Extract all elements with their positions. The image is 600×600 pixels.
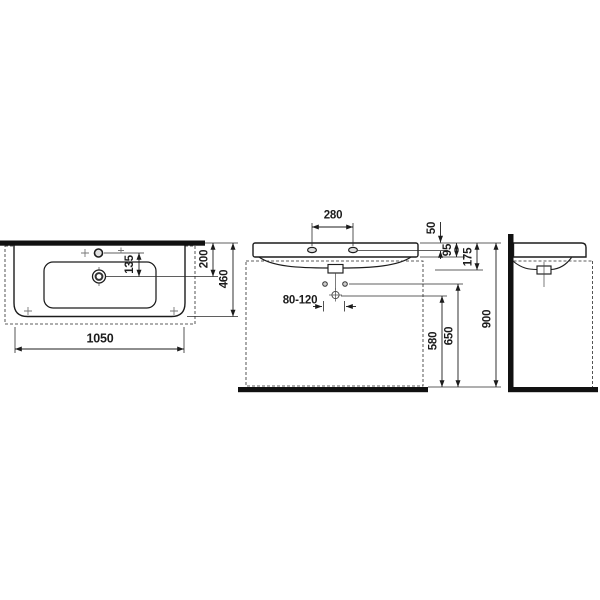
dim-label-95: 95 (442, 243, 454, 256)
dim-label-50: 50 (426, 222, 438, 234)
top-view: 135 200 460 1050 (0, 241, 238, 354)
dim-label-580: 580 (428, 332, 440, 351)
dim-label-175: 175 (463, 247, 475, 266)
dim-fixing-bolt-height: 650 (444, 284, 459, 387)
floor-line-side (508, 387, 598, 392)
tap-hole-icon (349, 247, 358, 252)
wall-section-bar (0, 241, 205, 246)
dim-rim-to-tap-hole: 50 (426, 222, 441, 259)
dim-label-280: 280 (324, 210, 343, 222)
dim-label-650: 650 (444, 327, 456, 346)
front-view: 280 80-120 50 (238, 210, 501, 393)
dim-label-1050: 1050 (86, 332, 113, 346)
tap-hole-icon (95, 249, 103, 257)
dim-overall-width: 1050 (15, 327, 184, 353)
dim-basin-body-height: 175 (463, 243, 478, 270)
dim-label-135: 135 (124, 254, 136, 273)
technical-drawing-canvas: 135 200 460 1050 (0, 0, 600, 600)
side-view (508, 234, 598, 392)
basin-front-profile (253, 243, 418, 257)
dim-tap-hole-spacing: 280 (312, 210, 353, 247)
dim-label-80-120: 80-120 (283, 295, 318, 307)
wall-section-bar-side (508, 234, 514, 392)
fixing-hole-icon (343, 282, 348, 287)
dim-label-900: 900 (482, 310, 494, 329)
dim-trap-offset-range: 80-120 (283, 295, 356, 312)
drain-outlet (328, 265, 343, 274)
cabinet-dashed-outline (246, 261, 423, 386)
dim-overall-depth: 460 (187, 243, 238, 317)
washbasin-drawing: 135 200 460 1050 (0, 0, 600, 600)
dim-label-460: 460 (219, 270, 231, 289)
dim-rim-height: 900 (482, 243, 497, 387)
dim-apron-height: 95 (442, 243, 457, 257)
fixing-hole-icon (323, 282, 328, 287)
dim-trap-height: 580 (428, 296, 443, 387)
trap-position-crosshair-icon (329, 289, 342, 302)
basin-side-profile (514, 243, 587, 257)
dim-label-200: 200 (199, 250, 211, 269)
floor-line (238, 387, 428, 392)
tap-hole-icon (308, 247, 317, 252)
